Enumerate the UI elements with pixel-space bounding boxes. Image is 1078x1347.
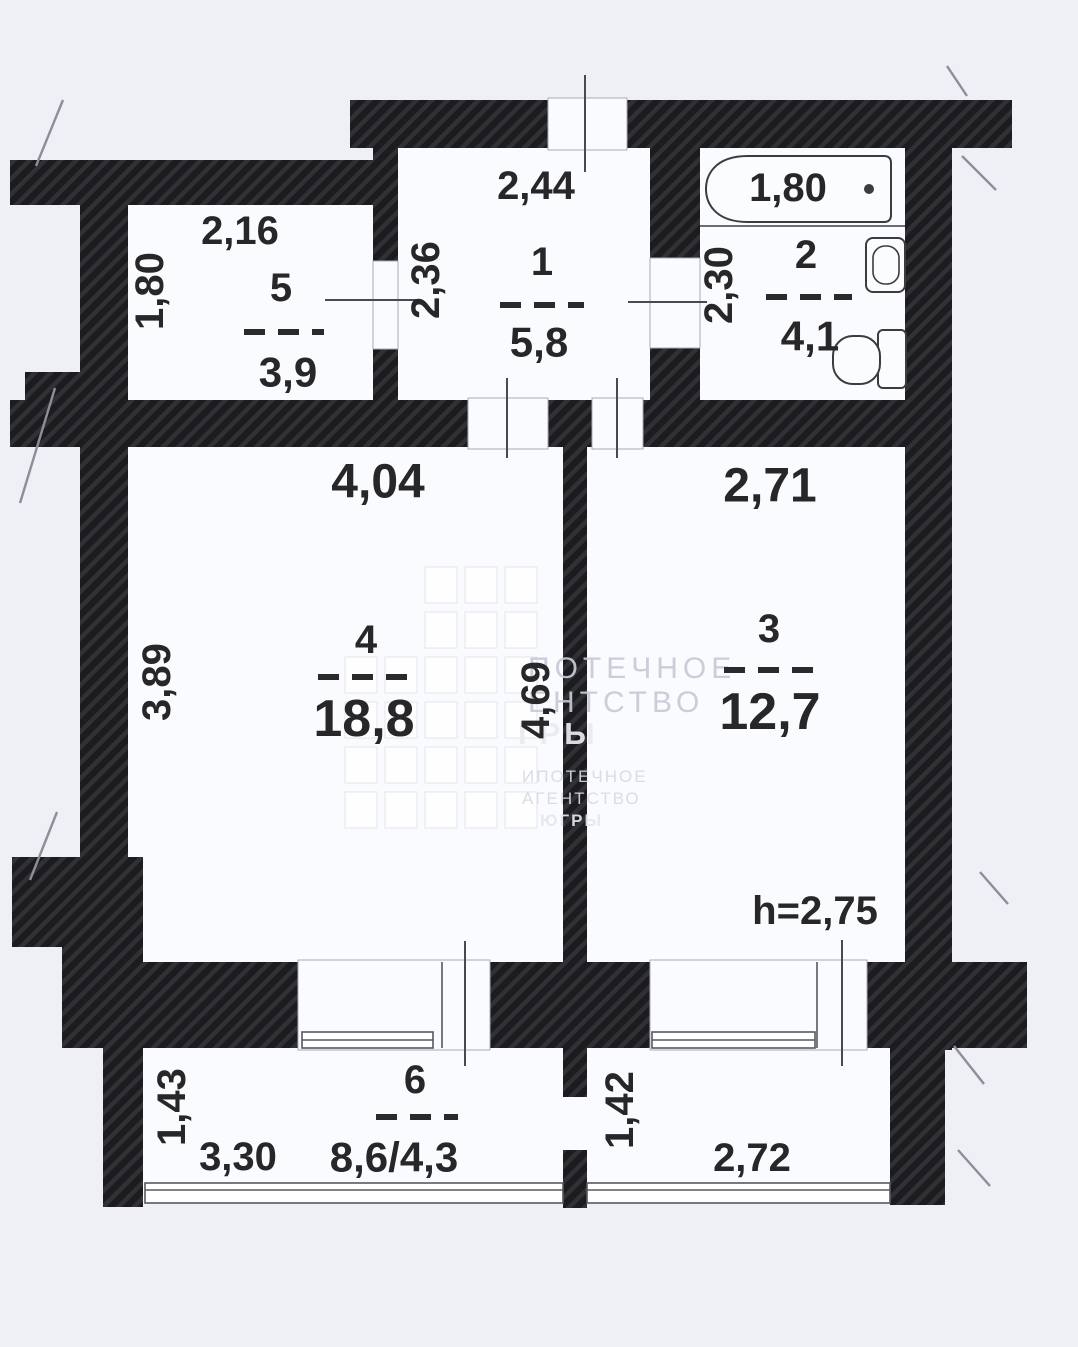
room5-width-label: 2,16 [201, 209, 279, 253]
room3-area: 12,7 [719, 683, 820, 741]
room1-number: 1 [531, 240, 553, 284]
bathtub-drain-icon [864, 184, 874, 194]
wall-left-pilaster [25, 372, 87, 402]
wall-room3-balcony-left [587, 962, 650, 1048]
room2-depth-label: 2,30 [697, 246, 741, 324]
wall-room1-room2 [650, 100, 700, 400]
balcony6-number: 6 [404, 1058, 426, 1102]
balcony-right-depth-label: 1,42 [598, 1071, 642, 1149]
entrance-opening [548, 98, 627, 150]
wall-balcony-left [103, 1048, 143, 1207]
wall-lower-left-block [12, 857, 143, 947]
room2-number: 2 [795, 233, 817, 277]
room1-area: 5,8 [510, 319, 568, 366]
room4-width-label: 4,04 [331, 456, 425, 509]
toilet-tank-icon [878, 330, 906, 388]
logo-grid-cell [465, 567, 497, 603]
room4-depth-label: 3,89 [135, 643, 179, 721]
watermark-small-line2: АГЕНТСТВО [522, 789, 641, 808]
logo-grid-cell [385, 792, 417, 828]
logo-grid-cell [465, 702, 497, 738]
logo-grid-cell [425, 702, 457, 738]
ceiling-height-label: h=2,75 [752, 889, 878, 933]
room2-area: 4,1 [781, 313, 839, 360]
balcony-passage-floor [563, 1097, 587, 1150]
floor-plan-drawing: ПОТЕЧНОЕ ЕНТСТВО ГРЫ ИПОТЕЧНОЕ АГЕНТСТВО… [0, 0, 1078, 1347]
logo-grid-cell [505, 567, 537, 603]
watermark-small-line1: ИПОТЕЧНОЕ [522, 767, 648, 786]
room3-number: 3 [758, 607, 780, 651]
room5-area: 3,9 [259, 349, 317, 396]
wall-lower-left-step [62, 947, 143, 1048]
logo-grid-cell [425, 657, 457, 693]
logo-grid-cell [425, 567, 457, 603]
logo-grid-cell [425, 747, 457, 783]
wall-room3-balcony-right [867, 962, 1027, 1048]
logo-grid-cell [345, 747, 377, 783]
room1-depth-label: 2,36 [404, 241, 448, 319]
wall-room4-balcony-right [490, 962, 563, 1048]
logo-grid-cell [385, 747, 417, 783]
balcony6-depth-label: 1,43 [150, 1068, 194, 1146]
balcony-right-width-label: 2,72 [713, 1136, 791, 1180]
wall-balcony-pier [563, 1150, 587, 1208]
toilet-bowl-icon [833, 336, 880, 384]
logo-grid-cell [465, 612, 497, 648]
balcony6-area: 8,6/4,3 [330, 1134, 458, 1181]
sink-basin-icon [873, 246, 899, 284]
wall-right [905, 147, 952, 1050]
wall-room5-top [10, 160, 398, 205]
room4-number: 4 [355, 618, 378, 662]
balcony-right-glazing [587, 1183, 890, 1203]
wall-left [80, 205, 128, 857]
room4-inner-depth-label: 4,69 [514, 661, 558, 739]
logo-grid-cell [465, 747, 497, 783]
logo-grid-cell [465, 657, 497, 693]
logo-grid-cell [345, 792, 377, 828]
logo-grid-cell [465, 792, 497, 828]
room5-number: 5 [270, 266, 292, 310]
watermark-small-line3: ЮГРЫ [540, 811, 603, 830]
logo-grid-cell [425, 612, 457, 648]
room5-door-opening [373, 261, 398, 349]
logo-grid-cell [425, 792, 457, 828]
balcony6-width-label: 3,30 [199, 1135, 277, 1179]
balcony6-glazing [145, 1183, 563, 1203]
room1-width-label: 2,44 [497, 164, 576, 208]
watermark-text-line1: ПОТЕЧНОЕ [528, 652, 736, 685]
wall-room4-balcony-left [143, 962, 298, 1048]
room4-area: 18,8 [313, 690, 414, 748]
floor-plan-page: ПОТЕЧНОЕ ЕНТСТВО ГРЫ ИПОТЕЧНОЕ АГЕНТСТВО… [0, 0, 1078, 1347]
room5-depth-label: 1,80 [128, 252, 172, 330]
room3-width-label: 2,71 [723, 460, 816, 513]
wall-balcony-right [890, 1048, 945, 1205]
bathtub-length-label: 1,80 [749, 166, 827, 210]
logo-grid-cell [505, 612, 537, 648]
